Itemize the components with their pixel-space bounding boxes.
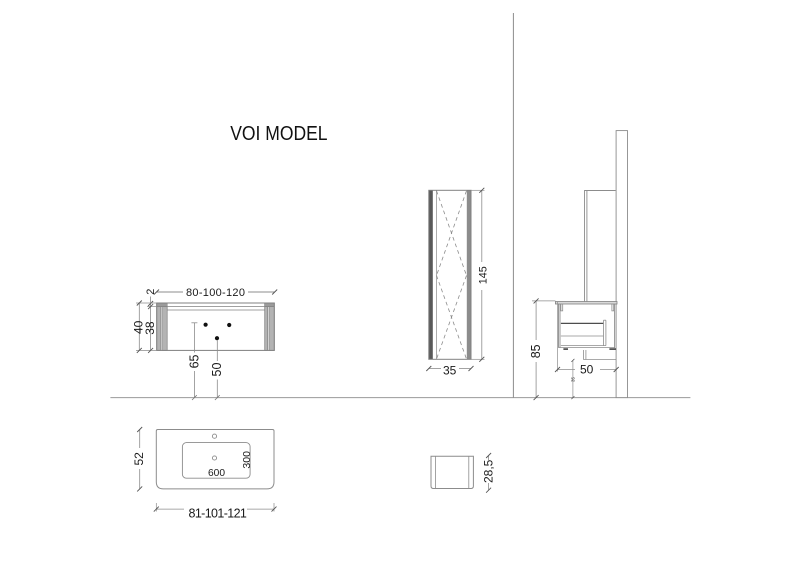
svg-text:50: 50 bbox=[580, 363, 594, 377]
svg-text:65: 65 bbox=[188, 354, 202, 368]
svg-text:85: 85 bbox=[529, 344, 543, 358]
svg-text:VOI MODEL: VOI MODEL bbox=[230, 123, 328, 146]
svg-text:52: 52 bbox=[132, 452, 146, 466]
svg-text:38: 38 bbox=[143, 321, 157, 335]
svg-text:35: 35 bbox=[443, 364, 457, 378]
svg-text:28,5: 28,5 bbox=[482, 459, 496, 483]
svg-text:300: 300 bbox=[241, 451, 253, 469]
svg-text:50: 50 bbox=[210, 363, 224, 377]
svg-text:145: 145 bbox=[478, 266, 490, 284]
svg-text:600: 600 bbox=[208, 468, 225, 479]
svg-text:2: 2 bbox=[145, 289, 157, 295]
svg-text:81-101-121: 81-101-121 bbox=[189, 506, 247, 520]
svg-text:35: 35 bbox=[571, 376, 576, 382]
svg-text:80-100-120: 80-100-120 bbox=[186, 287, 245, 299]
